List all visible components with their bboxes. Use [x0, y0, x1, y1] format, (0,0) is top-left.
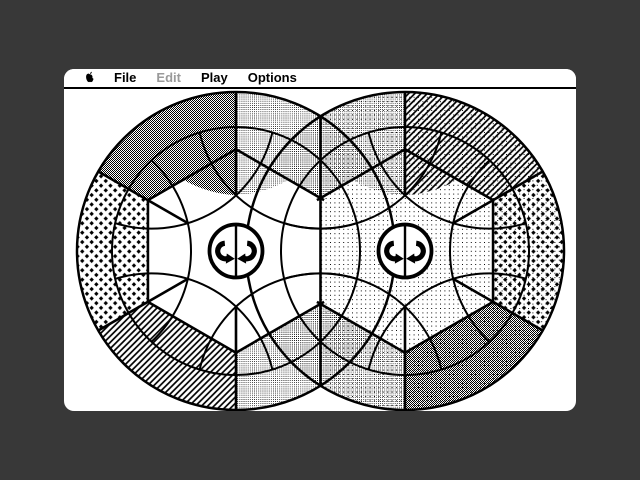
menu-bar: FileEditPlayOptions	[64, 69, 576, 89]
menu-play[interactable]: Play	[191, 69, 238, 87]
menu-edit[interactable]: Edit	[146, 69, 191, 87]
hub-right	[379, 225, 432, 278]
menu-file[interactable]: File	[104, 69, 146, 87]
apple-logo-icon	[84, 71, 96, 85]
menu-options[interactable]: Options	[238, 69, 307, 87]
hub-left	[210, 225, 263, 278]
desktop-background: FileEditPlayOptions	[0, 0, 640, 480]
apple-menu[interactable]	[78, 71, 104, 85]
